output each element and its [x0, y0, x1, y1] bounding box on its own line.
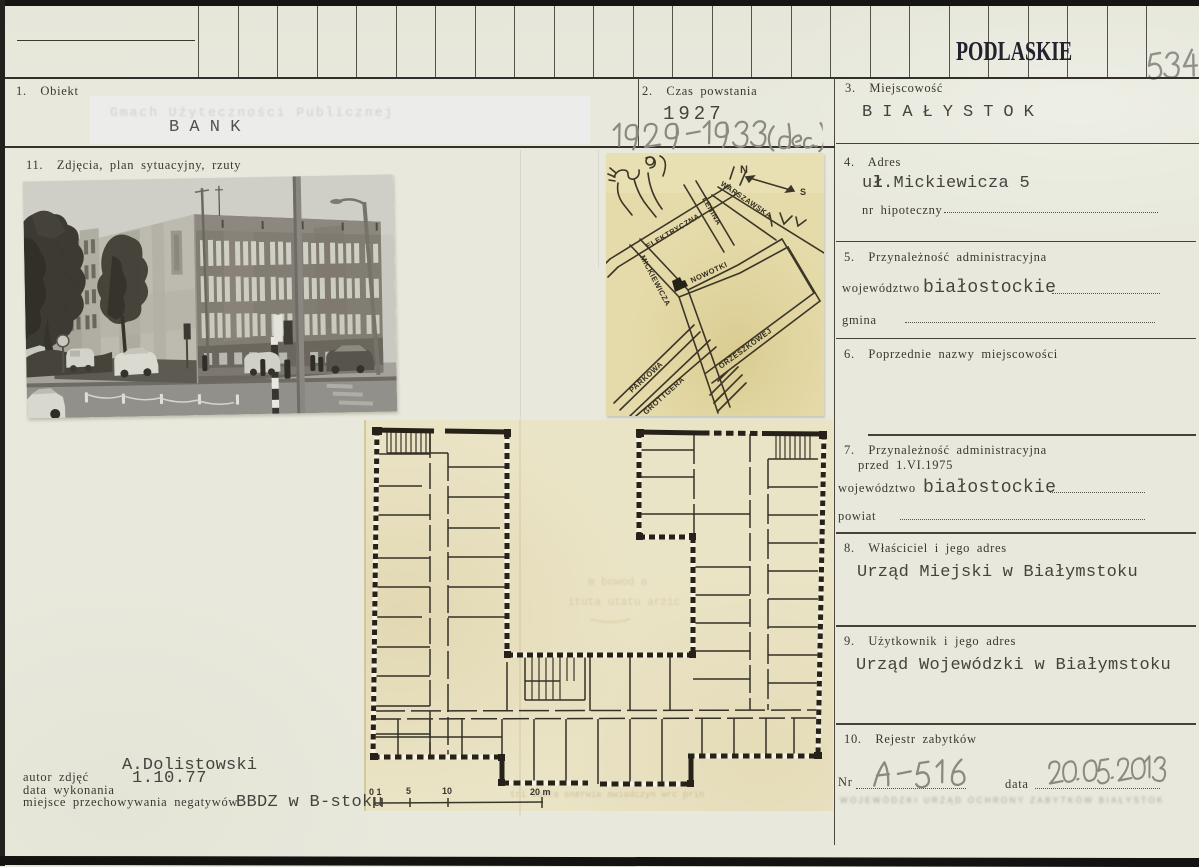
svg-text:20 m: 20 m — [530, 787, 551, 797]
svg-text:m bowod a: m bowod a — [588, 577, 648, 589]
svg-text:N: N — [740, 164, 748, 176]
svg-text:10: 10 — [442, 786, 452, 796]
svg-text:ituta utatu arzic: ituta utatu arzic — [568, 597, 680, 609]
svg-text:5: 5 — [406, 786, 411, 796]
svg-text:S: S — [800, 187, 806, 197]
